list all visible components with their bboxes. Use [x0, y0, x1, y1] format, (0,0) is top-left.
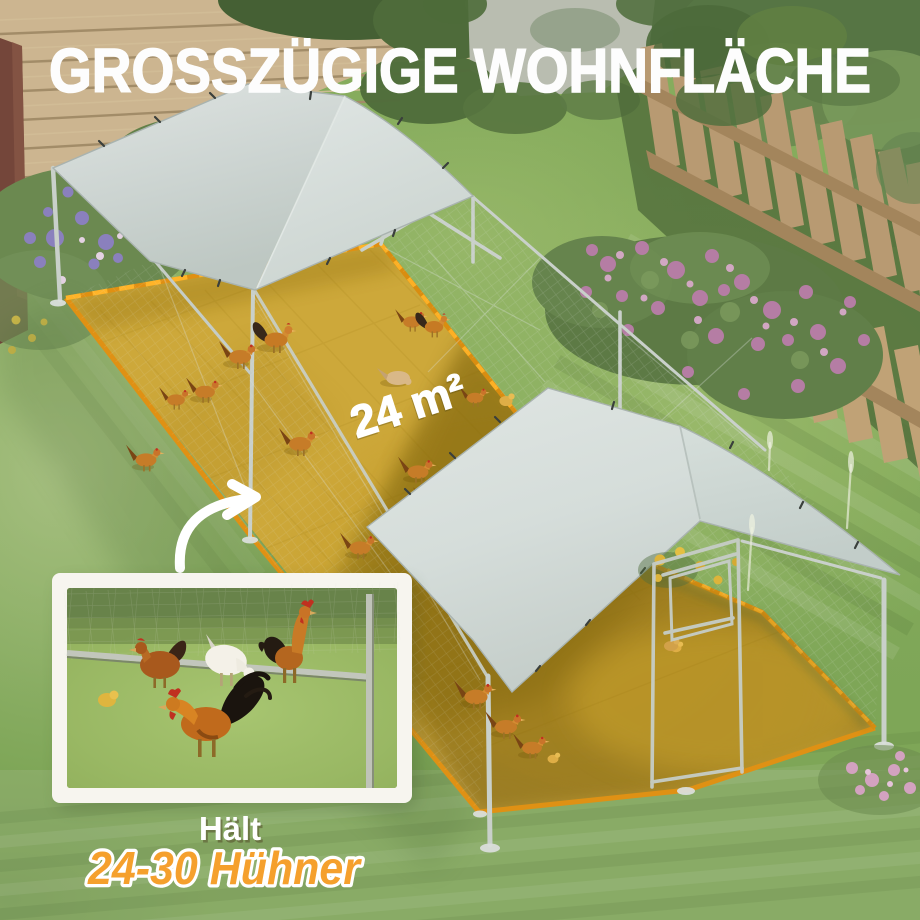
- svg-text:GROSSZÜGIGE WOHNFLÄCHE: GROSSZÜGIGE WOHNFLÄCHE: [49, 37, 871, 106]
- svg-text:24-30 Hühner: 24-30 Hühner: [87, 842, 362, 894]
